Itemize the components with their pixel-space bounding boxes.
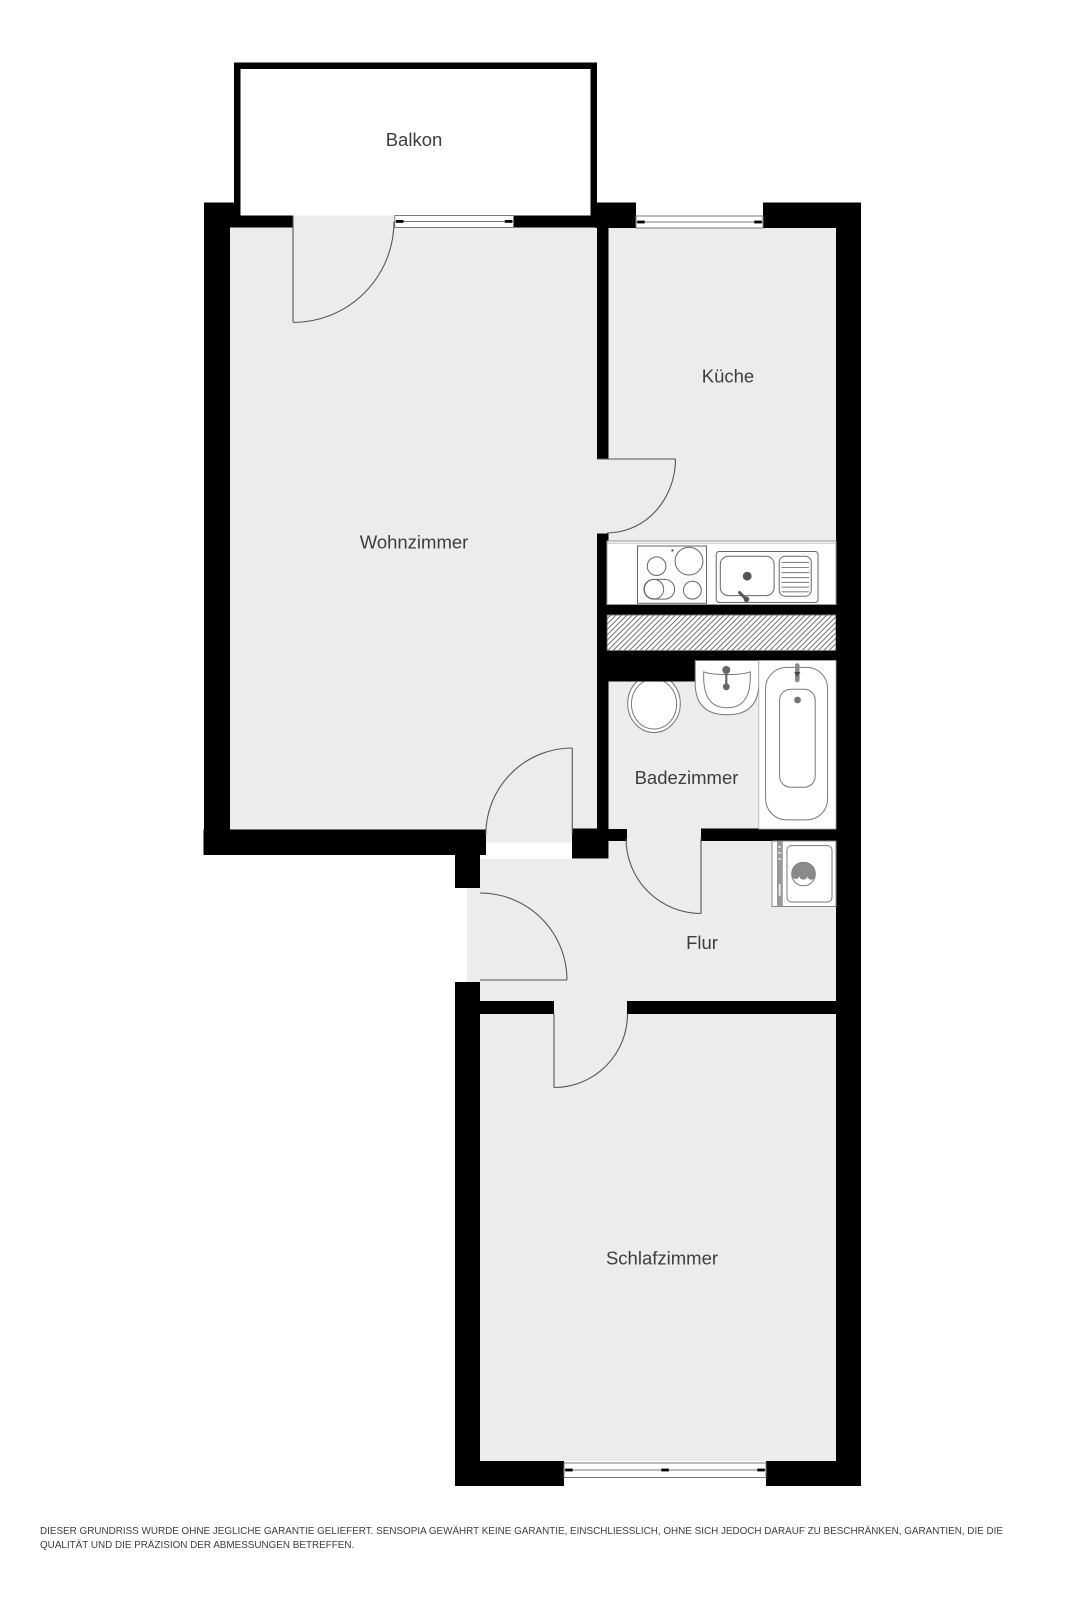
svg-text:Flur: Flur <box>686 932 718 953</box>
svg-text:Balkon: Balkon <box>386 129 443 150</box>
svg-text:QUALITÄT UND DIE PRÄZISION DER: QUALITÄT UND DIE PRÄZISION DER ABMESSUNG… <box>40 1540 354 1551</box>
svg-text:Wohnzimmer: Wohnzimmer <box>360 532 469 553</box>
svg-text:DIESER GRUNDRISS WURDE OHNE JE: DIESER GRUNDRISS WURDE OHNE JEGLICHE GAR… <box>40 1526 1003 1537</box>
svg-text:Küche: Küche <box>702 366 754 387</box>
svg-text:Schlafzimmer: Schlafzimmer <box>606 1248 718 1269</box>
svg-text:Badezimmer: Badezimmer <box>635 767 739 788</box>
